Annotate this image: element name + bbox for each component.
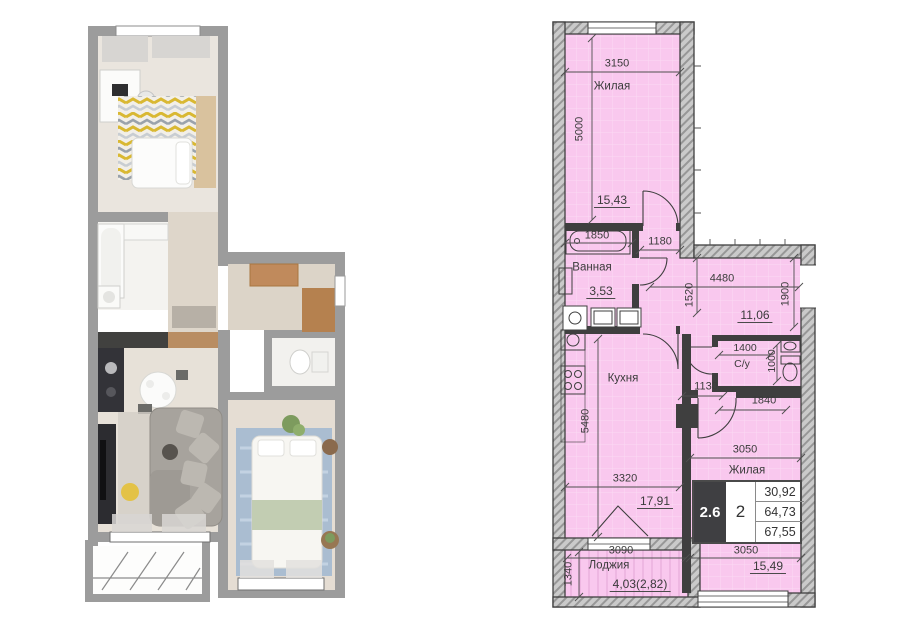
plate [146,380,154,388]
bed1-pillow [176,142,190,184]
dining-chair [176,370,188,380]
dim-1840: 1840 [752,396,776,407]
dining-table [140,372,176,408]
apartment-info-table: 2.6 2 30,92 64,73 67,55 [692,480,802,544]
area-excl-cell: 64,73 [756,502,804,522]
toilet-tank-3d [312,352,328,372]
room-label-bathroom: Ванная [572,262,611,274]
plan-code-cell: 2.6 [694,482,726,542]
area-loggia: 4,03(2,82) [610,578,671,592]
living-curtain [112,514,152,532]
coffee-table [162,444,178,460]
plate [162,392,170,400]
bedroom2-curtain [286,560,322,578]
dim-3320: 3320 [613,474,637,485]
toilet-3d [290,350,310,374]
area-kitchen: 17,91 [637,495,673,509]
dim-1900: 1900 [781,282,792,306]
rooms-count-cell: 2 [726,482,756,542]
washer-symbol [563,306,587,330]
dim-3050-bottom: 3050 [734,546,758,557]
dim-1400: 1400 [733,343,756,354]
dim-4480: 4480 [710,274,734,285]
entry-opening [800,265,816,308]
window-bottom [698,591,788,607]
yellow-pouf [121,483,139,501]
room-label-living-top: Жилая [594,81,630,93]
dim-1340: 1340 [564,562,575,586]
kitchen-sink-3d [105,362,117,374]
bath-counter [124,224,168,240]
bedroom1-window [116,26,200,36]
kitchen-counter-wood [168,332,218,348]
floorplan-page: 3150 Жилая 5000 15,43 1850 1180 Ванная 3… [0,0,900,623]
dim-3050-top: 3050 [733,445,757,456]
dim-1180: 1180 [648,237,672,248]
side-table [322,439,338,455]
dim-5480: 5480 [581,409,592,433]
wood-floor-strip [194,96,216,188]
living-window [110,532,210,542]
bed2-pillow [290,440,316,456]
living-area-cell: 30,92 [756,482,804,502]
dim-1130: 1130 [694,382,718,393]
dim-1520: 1520 [685,283,696,307]
area-total-cell: 67,55 [756,522,804,542]
area-hallway: 11,06 [737,309,772,323]
curtain-left [102,36,148,62]
area-bathroom: 3,53 [586,285,615,299]
room-label-kitchen: Кухня [608,373,639,385]
wall-tick-marks [694,66,785,245]
plant [293,424,305,436]
entry-door-3d [335,276,345,306]
curtain-right [152,36,210,58]
bed2-pillow [258,440,284,456]
dim-5000: 5000 [575,117,586,141]
dim-1850: 1850 [585,231,609,242]
area-living-bottom: 15,49 [750,560,786,574]
tv-screen [100,440,106,500]
washer-door [103,291,115,303]
living-curtain [162,514,206,532]
hall-bench [172,306,216,328]
bathtub-basin [101,228,121,292]
dim-1000: 1000 [767,349,778,372]
room-label-loggia: Лоджия [589,560,630,572]
room-label-living-bottom: Жилая [729,465,765,477]
render-loggia [93,546,202,594]
bedroom2-window [238,578,324,590]
plant [325,533,335,543]
bed2-throw [252,500,322,530]
corner-wardrobe [302,288,335,332]
dim-3090: 3090 [609,546,633,557]
laptop [112,84,128,96]
kitchen-units [98,348,124,412]
dim-3150: 3150 [605,59,629,70]
entry-wardrobe [250,264,298,286]
render-plan [85,26,345,602]
area-living-top: 15,43 [594,194,630,208]
room-label-wc: С/у [734,359,750,370]
vent-shaft [676,404,698,428]
kitchen-hob-3d [106,387,116,397]
bedroom2-curtain [240,560,274,578]
